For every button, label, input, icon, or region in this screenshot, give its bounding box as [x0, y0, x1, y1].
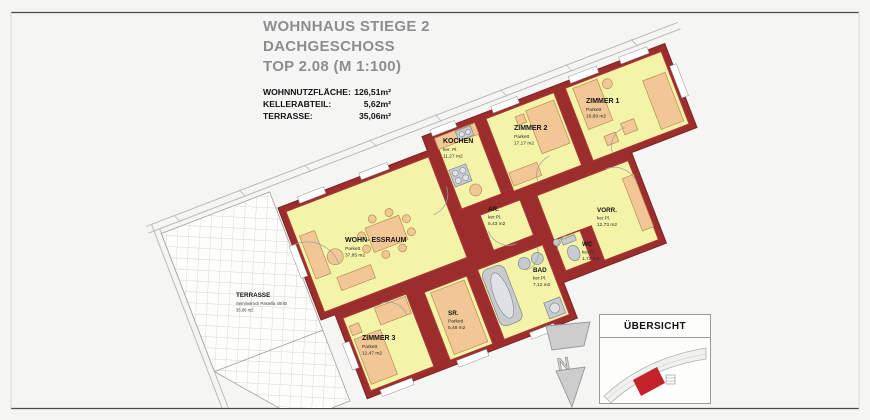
overview-box: ÜBERSICHT	[599, 314, 711, 404]
stat-value: 35,06m²	[359, 110, 391, 122]
svg-text:1,72 m2: 1,72 m2	[582, 256, 600, 262]
svg-text:KOCHEN: KOCHEN	[443, 138, 473, 145]
svg-text:TERRASSE: TERRASSE	[236, 292, 270, 299]
overview-title: ÜBERSICHT	[600, 315, 710, 338]
svg-text:ker.Pl.: ker.Pl.	[533, 276, 546, 282]
stat-label: TERRASSE:	[263, 110, 313, 122]
overview-sketch	[600, 338, 710, 404]
stat-label: WOHNNUTZFLÄCHE:	[263, 86, 351, 98]
svg-text:12,73 m2: 12,73 m2	[597, 222, 617, 228]
svg-text:37,85 m2: 37,85 m2	[345, 253, 365, 259]
svg-text:AR.: AR.	[488, 206, 499, 213]
svg-text:35,06 m2: 35,06 m2	[236, 308, 254, 313]
floorplan-canvas: WOHN- ESSRAUM Parkett 37,85 m2 KOCHEN ke…	[0, 0, 870, 420]
svg-text:7,12 m2: 7,12 m2	[533, 282, 551, 288]
svg-text:Parkett: Parkett	[448, 319, 464, 325]
svg-text:ker.Pl.: ker.Pl.	[488, 215, 501, 221]
svg-text:12,47 m2: 12,47 m2	[362, 351, 382, 357]
svg-text:Parkett: Parkett	[362, 344, 378, 350]
stat-value: 5,62m²	[364, 98, 391, 110]
stat-wohnnutzflaeche: WOHNNUTZFLÄCHE: 126,51m²	[263, 86, 391, 98]
svg-text:ker.Pl.: ker.Pl.	[582, 250, 595, 256]
svg-text:Parkett: Parkett	[345, 246, 361, 252]
svg-text:16,89 m2: 16,89 m2	[586, 114, 606, 120]
floorplan-drawing: WOHN- ESSRAUM Parkett 37,85 m2 KOCHEN ke…	[0, 0, 870, 420]
north-arrow: N	[546, 322, 590, 407]
svg-text:Parkett: Parkett	[514, 134, 530, 140]
svg-text:ZIMMER 3: ZIMMER 3	[362, 335, 396, 342]
stat-label: KELLERABTEIL:	[263, 98, 331, 110]
svg-text:BAD: BAD	[533, 267, 547, 274]
svg-text:11,27 m2: 11,27 m2	[443, 154, 463, 160]
svg-text:17,17 m2: 17,17 m2	[514, 141, 534, 147]
svg-text:ZIMMER 1: ZIMMER 1	[586, 98, 620, 105]
svg-text:WOHN- ESSRAUM: WOHN- ESSRAUM	[345, 237, 407, 244]
svg-text:5,48 m2: 5,48 m2	[448, 325, 466, 331]
stat-kellerabteil: KELLERABTEIL: 5,62m²	[263, 98, 391, 110]
project-title-line2: DACHGESCHOSS	[263, 37, 430, 57]
svg-text:Parkett: Parkett	[586, 107, 602, 113]
project-title-line1: WOHNHAUS STIEGE 2	[263, 17, 430, 37]
project-title-line3: TOP 2.08 (M 1:100)	[263, 57, 430, 77]
svg-text:ZIMMER 2: ZIMMER 2	[514, 125, 548, 132]
svg-text:ker.Pl.: ker.Pl.	[597, 216, 610, 222]
stat-terrasse: TERRASSE: 35,06m²	[263, 110, 391, 122]
svg-text:SR.: SR.	[448, 310, 459, 317]
area-statistics: WOHNNUTZFLÄCHE: 126,51m² KELLERABTEIL: 5…	[263, 86, 391, 122]
svg-text:Semmelrock Pastella 40/40: Semmelrock Pastella 40/40	[236, 301, 288, 306]
stat-value: 126,51m²	[354, 86, 391, 98]
svg-text:WC: WC	[582, 241, 593, 248]
svg-text:ker. Pl.: ker. Pl.	[443, 147, 458, 153]
svg-text:VORR.: VORR.	[597, 207, 617, 214]
title-block: WOHNHAUS STIEGE 2 DACHGESCHOSS TOP 2.08 …	[263, 17, 430, 122]
svg-text:5,43 m2: 5,43 m2	[488, 221, 506, 227]
